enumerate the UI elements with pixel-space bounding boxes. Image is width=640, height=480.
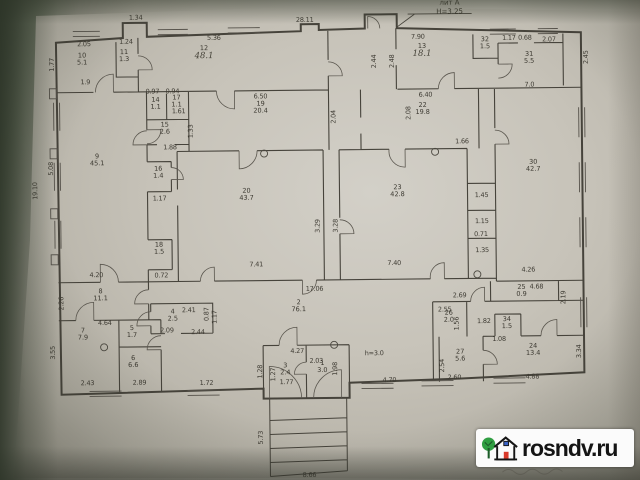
watermark-site-name: rosndv.ru [522, 435, 617, 462]
rosndv-logo-icon [481, 432, 519, 464]
height-label: Н=3.25 [410, 7, 490, 16]
exterior-walls [56, 12, 585, 400]
photo-background: 105.1111.31248.11318.1321.5315.5141.1171… [0, 0, 640, 480]
interior-walls [56, 26, 585, 400]
floorplan-drawing [0, 0, 640, 480]
door-arcs [73, 15, 558, 401]
windows [49, 24, 588, 397]
liter-annotation: лит А Н=3.25 [409, 0, 489, 16]
handwriting-scribble [502, 469, 562, 475]
floorplan: 105.1111.31248.11318.1321.5315.5141.1171… [0, 0, 640, 480]
watermark-badge: rosndv.ru [476, 429, 634, 467]
porch-steps [270, 398, 348, 477]
fixture-symbols [99, 148, 482, 351]
